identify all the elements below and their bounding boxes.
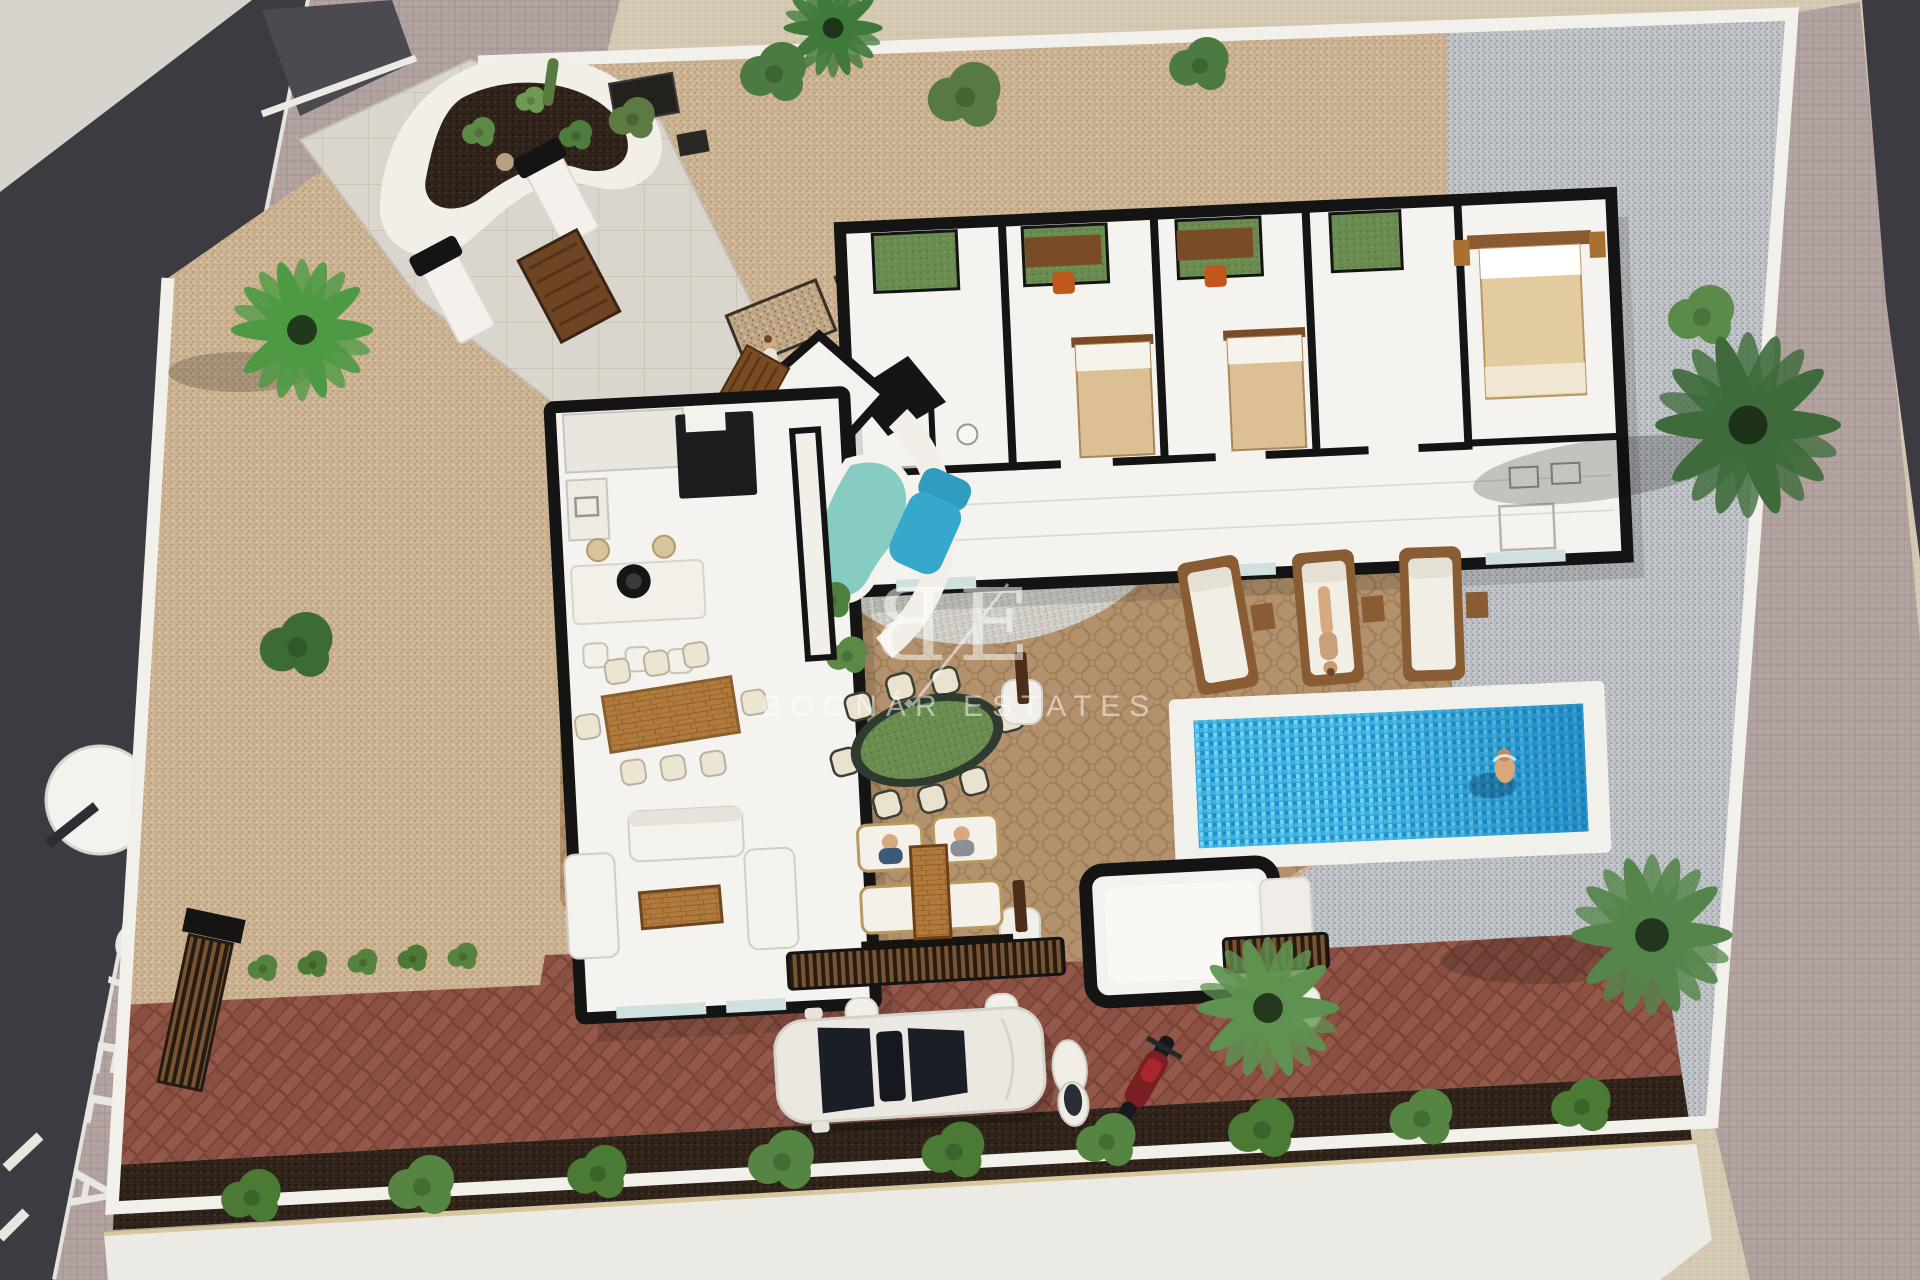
sofa [564,853,619,959]
dining-chair [604,658,631,685]
living-wing [537,332,919,1043]
pool-depth-shade [1193,704,1588,849]
bed-pillows [1075,342,1150,371]
coffee-table [639,886,722,929]
desk-chair [1052,271,1075,294]
bedroom-wing [840,192,1645,613]
nightstand [1589,231,1606,258]
watermark-name: BOGNÁR ESTATES [762,690,1159,723]
bed-pillows [1480,244,1581,279]
bed-runner [1485,362,1586,397]
outdoor-chair [871,789,903,821]
car-mirror [811,1121,830,1133]
desk-chair [1204,265,1227,288]
sun-loungers [1176,546,1489,696]
car-rear-glass [908,1025,968,1102]
sun-lounger [1399,546,1466,682]
pool [1168,681,1611,872]
bar-stool [652,535,675,558]
car-sunroof [876,1030,906,1101]
dining-chair [620,758,647,785]
outdoor-chair [916,783,948,815]
sofa [744,847,799,949]
nightstand [1453,239,1470,266]
dining-chair [643,649,670,676]
watermark-logo-b: B [875,567,949,684]
sink-counter [566,479,609,541]
car-windshield [817,1024,874,1113]
desk [1025,234,1102,267]
render-canvas: C/ EL A [0,0,1920,1280]
dining-chair [699,750,726,777]
bar-stool [586,539,609,562]
dining-chair [682,641,709,668]
watermark-logo-e: E [958,567,1031,684]
booth-table [910,845,951,939]
side-table [1250,603,1275,632]
decorative-stone [496,153,514,171]
dining-chair [574,713,601,740]
kitchen-counter [685,404,726,432]
bedroom-patio-grass [1330,211,1403,272]
car-mirror [804,1007,823,1019]
bed-pillows [1227,335,1302,364]
bedroom-patio-grass [872,231,959,293]
side-table [1361,595,1385,623]
dining-chair [659,754,686,781]
car [772,993,1055,1136]
villa-aerial-render: Aerial 3D architectural render of a sing… [0,0,1920,1280]
desk [1176,227,1253,260]
sink [957,424,978,445]
kitchen-cabinets [563,409,686,473]
side-table [1466,592,1489,619]
